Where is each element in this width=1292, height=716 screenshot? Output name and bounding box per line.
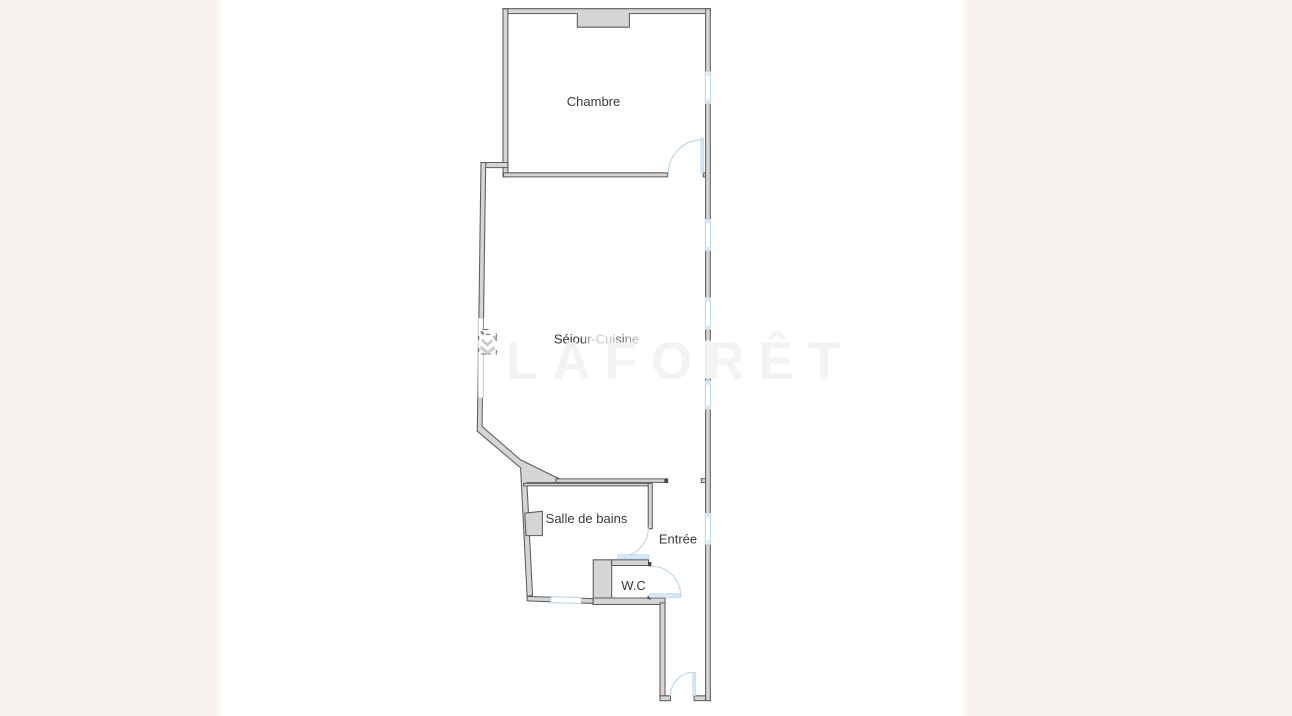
svg-text:W.C: W.C <box>621 578 646 593</box>
svg-text:Chambre: Chambre <box>567 94 620 109</box>
svg-text:LAFORÊT: LAFORÊT <box>506 330 854 391</box>
svg-text:Salle de bains: Salle de bains <box>546 511 628 526</box>
svg-text:Entrée: Entrée <box>659 532 697 547</box>
